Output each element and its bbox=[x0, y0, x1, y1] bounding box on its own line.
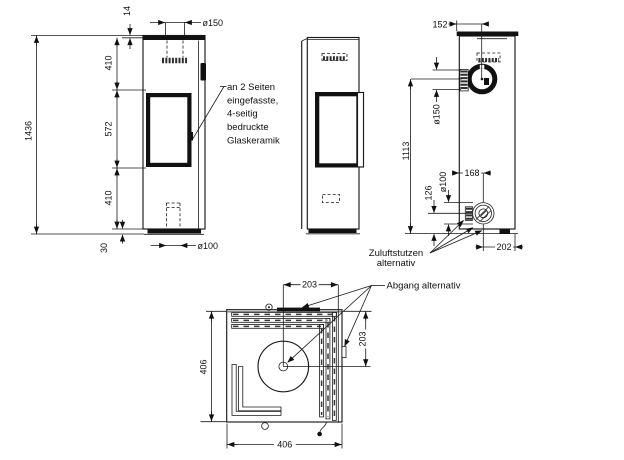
side-door-edge bbox=[358, 93, 364, 168]
dim-front-inlet-diameter: ø100 bbox=[151, 241, 219, 251]
front-air-pipe bbox=[167, 203, 181, 229]
dim-back-flue-diameter: ø150 bbox=[432, 57, 462, 125]
dim-text-glass-section: 572 bbox=[104, 121, 114, 136]
air-inlet-label-line2: alternativ bbox=[377, 258, 416, 269]
top-view: 406 406 203 20 bbox=[199, 280, 461, 450]
flue-alt-label-text: Abgang alternativ bbox=[387, 281, 461, 292]
dim-text-flue-height: 1113 bbox=[401, 142, 411, 161]
front-flue-pipe bbox=[162, 23, 187, 61]
dim-text-base-height: 30 bbox=[99, 243, 109, 253]
dim-top-depth: 406 bbox=[199, 311, 227, 421]
dim-text-outlet-x: 203 bbox=[302, 280, 317, 290]
dim-top-outlet-x: 203 bbox=[283, 280, 338, 311]
dim-front-total-height: 1436 bbox=[24, 36, 145, 235]
dim-text-outlet-y: 203 bbox=[358, 331, 368, 346]
dim-back-inlet-diameter: ø100 bbox=[438, 172, 473, 236]
dim-text-lower-section: 410 bbox=[104, 190, 114, 205]
stove-dimension-drawing: ø150 ø100 1436 bbox=[0, 0, 624, 460]
dim-text-top-width: 406 bbox=[277, 439, 292, 449]
dim-text-back-inlet-diameter: ø100 bbox=[438, 172, 448, 193]
dim-top-outlet-y: 203 bbox=[343, 311, 372, 366]
dim-front-base-height: 30 bbox=[99, 220, 123, 253]
glass-note-line1: an 2 Seiten bbox=[227, 82, 275, 93]
dim-text-flue-diameter: ø150 bbox=[203, 18, 224, 28]
dim-text-plate-thickness: 14 bbox=[122, 6, 132, 16]
dim-back-flue-height: 1113 bbox=[401, 79, 462, 234]
glass-note-line4: bedruckte bbox=[227, 122, 269, 133]
back-flue-top-stub bbox=[477, 53, 500, 62]
air-inlet-label: Zuluftstutzen alternativ bbox=[369, 220, 482, 268]
dim-back-inlet-offset: 168 bbox=[452, 168, 491, 202]
dim-text-total-height: 1436 bbox=[24, 121, 34, 141]
dim-top-width: 406 bbox=[227, 424, 342, 450]
dim-front-plate-thickness: 14 bbox=[122, 6, 145, 49]
dim-text-flue-offset: 152 bbox=[432, 20, 447, 30]
side-flue-stub bbox=[322, 54, 347, 61]
side-base bbox=[306, 229, 360, 234]
dim-text-inlet-offset: 168 bbox=[464, 168, 479, 178]
grate-handle-hook bbox=[317, 422, 326, 436]
glass-note-line2: eingefasste, bbox=[227, 95, 278, 106]
side-inlet-stub bbox=[323, 195, 340, 203]
dim-front-flue-diameter: ø150 bbox=[150, 18, 223, 28]
glass-annotation: an 2 Seiten eingefasste, 4-seitig bedruc… bbox=[193, 82, 280, 146]
dim-front-section-chain: 410 572 410 bbox=[104, 38, 148, 229]
glass-note-line3: 4-seitig bbox=[227, 109, 258, 120]
flue-alt-label: Abgang alternativ bbox=[288, 281, 461, 363]
dim-text-back-flue-diameter: ø150 bbox=[432, 104, 442, 125]
dim-back-inlet-height: 126 bbox=[424, 185, 473, 246]
dim-text-inlet-side-offset: 202 bbox=[496, 242, 511, 252]
glass-door bbox=[146, 93, 193, 167]
side-outlet-knockout bbox=[342, 347, 346, 358]
dim-text-top-depth: 406 bbox=[199, 359, 209, 374]
dim-text-inlet-diameter: ø100 bbox=[198, 241, 219, 251]
air-inlet-circle bbox=[473, 203, 494, 224]
dim-text-inlet-height: 126 bbox=[424, 185, 434, 200]
front-top-plate bbox=[143, 36, 205, 41]
door-latch bbox=[189, 132, 193, 141]
back-top-plate bbox=[457, 32, 519, 37]
front-base bbox=[144, 229, 204, 234]
technical-drawing: ø150 ø100 1436 bbox=[0, 0, 624, 460]
front-view: ø150 ø100 1436 bbox=[24, 6, 281, 253]
side-view bbox=[302, 38, 364, 234]
back-flue-collar bbox=[460, 70, 468, 91]
door-handle bbox=[201, 63, 207, 81]
glass-note-line5: Glaskeramik bbox=[227, 135, 280, 146]
side-glass bbox=[315, 92, 364, 168]
back-view: ø150 152 1113 bbox=[369, 20, 523, 269]
dim-back-flue-offset: 152 bbox=[432, 20, 489, 32]
front-knob bbox=[262, 423, 269, 430]
dim-text-upper-section: 410 bbox=[104, 55, 114, 70]
